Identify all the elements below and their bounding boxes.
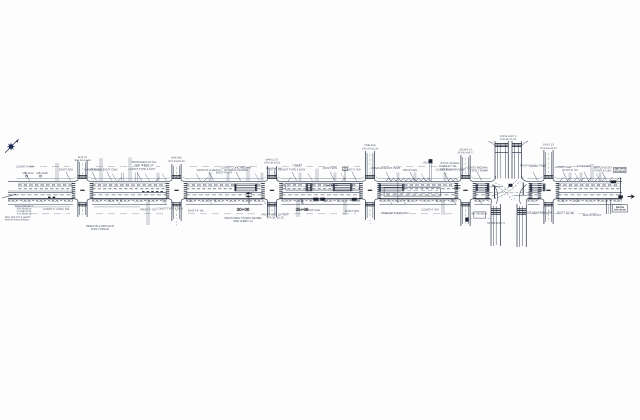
svg-text:PROP CURB RAMP: PROP CURB RAMP bbox=[440, 169, 465, 172]
svg-text:EX SIG BOX: EX SIG BOX bbox=[472, 213, 488, 216]
svg-text:STA 46+00: STA 46+00 bbox=[614, 208, 626, 211]
svg-text:CONST 6′ CONC SW: CONST 6′ CONC SW bbox=[43, 208, 70, 211]
svg-text:EXIST R/W: EXIST R/W bbox=[59, 169, 73, 172]
svg-text:CONST 6′ SW: CONST 6′ SW bbox=[16, 166, 34, 169]
svg-text:PROP 6″ SS: PROP 6″ SS bbox=[140, 209, 156, 212]
svg-text:MB 4012: MB 4012 bbox=[22, 172, 33, 175]
svg-text:W/ BRICK PAVERS: W/ BRICK PAVERS bbox=[224, 169, 248, 172]
svg-text:REF: SEE TITLE SHEET: REF: SEE TITLE SHEET bbox=[5, 216, 31, 219]
svg-text:STA 42+71.60: STA 42+71.60 bbox=[500, 138, 517, 141]
svg-text:STA 41+08.77: STA 41+08.77 bbox=[457, 152, 474, 155]
svg-text:EXIST 8″ WL: EXIST 8″ WL bbox=[188, 210, 205, 213]
svg-text:EXIST SIGNAL: EXIST SIGNAL bbox=[441, 162, 460, 165]
svg-text:35+00: 35+00 bbox=[296, 207, 309, 212]
svg-text:STA 26+12.44: STA 26+12.44 bbox=[74, 159, 91, 162]
svg-text:CONST 6′ SW: CONST 6′ SW bbox=[343, 168, 361, 171]
svg-text:STA 33+64.91: STA 33+64.91 bbox=[264, 162, 281, 165]
svg-text:EXIST 12″ WL: EXIST 12″ WL bbox=[439, 165, 457, 168]
svg-text:SEE SHEET 14: SEE SHEET 14 bbox=[233, 220, 253, 223]
svg-text:STA 44+32.05: STA 44+32.05 bbox=[540, 147, 557, 150]
svg-text:PROP SIGNAL POLE: PROP SIGNAL POLE bbox=[520, 164, 547, 167]
svg-text:STATE HWY 6: STATE HWY 6 bbox=[487, 222, 505, 225]
svg-text:PVMT & C&G: PVMT & C&G bbox=[595, 169, 612, 172]
svg-text:REMOVE EXIST DWY: REMOVE EXIST DWY bbox=[90, 168, 118, 171]
svg-text:TYPE 7 RAMP: TYPE 7 RAMP bbox=[470, 169, 488, 172]
svg-text:STA 33+10.25: STA 33+10.25 bbox=[266, 217, 284, 220]
svg-text:REMOVE EXIST DWY: REMOVE EXIST DWY bbox=[381, 212, 409, 215]
svg-text:CONST TYPE II DWY: CONST TYPE II DWY bbox=[279, 168, 306, 171]
svg-text:FOR DATUM & BENCH: FOR DATUM & BENCH bbox=[5, 219, 30, 222]
svg-text:EXIST R/W: EXIST R/W bbox=[323, 167, 337, 170]
svg-text:EXIST 10″ WL: EXIST 10″ WL bbox=[557, 212, 575, 215]
svg-text:STA 37+42.33: STA 37+42.33 bbox=[362, 147, 379, 150]
svg-text:EXIST R/W: EXIST R/W bbox=[577, 165, 591, 168]
svg-text:EXIST R/W: EXIST R/W bbox=[345, 210, 359, 213]
svg-text:STA 29+85.20: STA 29+85.20 bbox=[168, 160, 185, 163]
svg-text:MB 4018: MB 4018 bbox=[36, 172, 47, 175]
svg-text:CONST TYPE II DWY: CONST TYPE II DWY bbox=[129, 168, 156, 171]
svg-text:SIGNAL: SIGNAL bbox=[423, 162, 434, 165]
svg-text:CONST HEADER CURB: CONST HEADER CURB bbox=[522, 212, 553, 215]
svg-text:MATCH EXIST: MATCH EXIST bbox=[583, 214, 602, 217]
svg-text:REMOVE EXIST PVMT: REMOVE EXIST PVMT bbox=[372, 167, 401, 170]
svg-text:□ INLET: □ INLET bbox=[292, 164, 303, 167]
svg-text:EXIST FENCE: EXIST FENCE bbox=[91, 228, 109, 231]
svg-text:E 3125630.18: E 3125630.18 bbox=[17, 213, 32, 216]
svg-text:MATCH: MATCH bbox=[616, 206, 624, 209]
svg-text:PROP C&G: PROP C&G bbox=[403, 169, 417, 172]
svg-text:30+00: 30+00 bbox=[237, 207, 250, 212]
svg-text:CONST TYPE II DWY: CONST TYPE II DWY bbox=[157, 208, 184, 211]
svg-text:EXIST 8″ SS: EXIST 8″ SS bbox=[562, 169, 578, 172]
svg-text:CONST 6′ SW: CONST 6′ SW bbox=[421, 209, 439, 212]
svg-text:SEE SHEET 12: SEE SHEET 12 bbox=[135, 164, 154, 167]
